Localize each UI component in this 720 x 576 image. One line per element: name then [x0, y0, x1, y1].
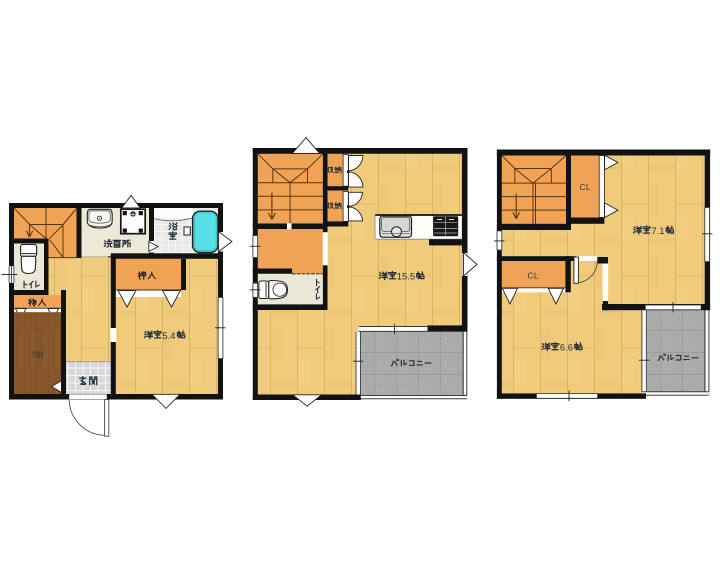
svg-text:CL: CL [580, 183, 591, 192]
svg-text:7.1: 7.1 [651, 225, 664, 236]
svg-text:15.5: 15.5 [397, 271, 415, 282]
svg-text:6.6: 6.6 [560, 342, 573, 353]
svg-text:CL: CL [528, 272, 539, 281]
svg-text:SB: SB [32, 350, 44, 360]
svg-text:5.4: 5.4 [162, 330, 175, 341]
